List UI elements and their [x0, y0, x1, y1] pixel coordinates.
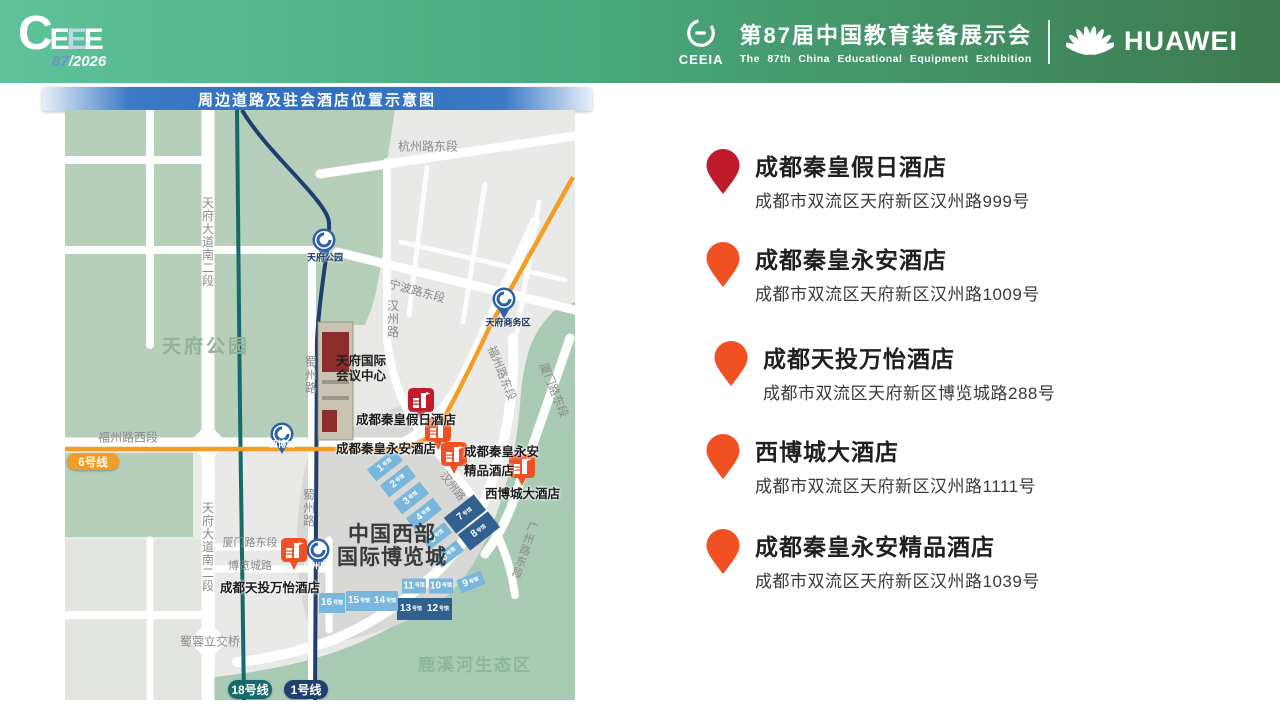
hall-11: 11号馆	[402, 579, 426, 594]
ceee-logo-c: C	[18, 7, 53, 60]
ceee-logo: CEEE 87/2026	[18, 10, 106, 69]
road-shuzhou-top: 蜀州路	[303, 356, 320, 395]
hall-16: 16号馆	[319, 593, 345, 613]
ceeia-text: CEEIA	[679, 52, 724, 67]
list-item: 成都天投万怡酒店 成都市双流区天府新区博览城路288号	[713, 340, 1055, 404]
hotel-list: 成都秦皇假日酒店 成都市双流区天府新区汉州路999号 成都秦皇永安酒店 成都市双…	[705, 140, 1265, 620]
hotel-address: 成都市双流区天府新区汉州路1039号	[755, 567, 1040, 592]
hall-12: 12号馆	[424, 598, 452, 620]
huawei-text: HUAWEI	[1124, 26, 1238, 57]
hotel-address: 成都市双流区天府新区汉州路1111号	[755, 472, 1036, 497]
hotel-name: 成都秦皇假日酒店	[755, 148, 1030, 182]
station-label-xibocheng: 西博城	[269, 438, 295, 450]
road-xiamen-east-bl: 厦门路东段	[223, 534, 278, 550]
huawei-flower-icon	[1066, 21, 1114, 63]
list-item: 成都秦皇假日酒店 成都市双流区天府新区汉州路999号	[705, 148, 1030, 212]
hall-14: 14号馆	[372, 591, 398, 611]
hotel-name: 成都秦皇永安酒店	[755, 241, 1040, 275]
station-label-tianfu-biz: 天府商务区	[485, 316, 530, 329]
map-pin-icon	[705, 528, 741, 576]
road-shuzhou-bottom: 蜀州路	[301, 489, 318, 528]
list-item: 西博城大酒店 成都市双流区天府新区汉州路1111号	[705, 433, 1036, 497]
hotel-name: 成都天投万怡酒店	[763, 340, 1055, 374]
conference-center-label: 天府国际 会议中心	[336, 354, 386, 384]
header-divider	[1048, 20, 1050, 64]
ceeia-logo: CEEIA	[679, 16, 724, 67]
huawei-logo: HUAWEI	[1066, 21, 1238, 63]
list-item: 成都秦皇永安精品酒店 成都市双流区天府新区汉州路1039号	[705, 528, 1040, 592]
hotel-address: 成都市双流区天府新区汉州路1009号	[755, 280, 1040, 305]
map-hotel-label-xibocheng: 西博城大酒店	[485, 483, 560, 502]
hotel-name: 西博城大酒店	[755, 433, 1036, 467]
map-hotel-label-wanyi: 成都天投万怡酒店	[220, 577, 320, 596]
park-label: 天府公园	[162, 332, 250, 359]
header-right: CEEIA 第87届中国教育装备展示会 The 87th China Educa…	[679, 0, 1238, 83]
header-bar: CEEE 87/2026 CEEIA 第87届中国教育装备展示会 The 87t…	[0, 0, 1280, 83]
station-label-guangzhoulu: 广州路	[303, 560, 329, 572]
hall-10: 10号馆	[429, 579, 453, 594]
map-hotel-label-yongan: 成都秦皇永安酒店	[336, 438, 436, 457]
road-bolancheng: 博览城路	[228, 557, 272, 573]
map-pin-icon	[705, 433, 741, 481]
map-pin-icon	[705, 148, 741, 196]
road-tianfu-ave-n2-top: 天府大道南二段	[200, 197, 217, 288]
venue-label: 中国西部 国际博览城	[337, 523, 447, 569]
badge-line-1: 1号线	[284, 680, 328, 699]
badge-line-18: 18号线	[228, 680, 272, 699]
hall-13: 13号馆	[397, 598, 425, 620]
road-shurong-interchange: 蜀蓉立交桥	[180, 633, 240, 650]
station-label-tianfu-park: 天府公园	[307, 251, 343, 264]
road-tianfu-ave-n2-bottom: 天府大道南二段	[200, 502, 217, 593]
map-pin-icon	[713, 340, 749, 388]
hall-15: 15号馆	[346, 591, 372, 611]
map-title-banner: 周边道路及驻会酒店位置示意图	[42, 87, 592, 111]
map-hotel-label-jiari: 成都秦皇假日酒店	[356, 409, 456, 428]
hotel-address: 成都市双流区天府新区博览城路288号	[763, 379, 1055, 404]
ceee-logo-e3: E	[84, 23, 104, 56]
list-item: 成都秦皇永安酒店 成都市双流区天府新区汉州路1009号	[705, 241, 1040, 305]
exhibition-title-cn: 第87届中国教育装备展示会	[740, 18, 1032, 50]
road-hangzhou-east: 杭州路东段	[398, 138, 458, 155]
ceeia-circle-icon	[684, 16, 718, 50]
road-fuzhou-west: 福州路西段	[98, 429, 158, 446]
map-title: 周边道路及驻会酒店位置示意图	[198, 89, 436, 110]
map-pin-icon	[705, 241, 741, 289]
road-hanzhou-top: 汉州路	[385, 300, 402, 339]
exhibition-title: 第87届中国教育装备展示会 The 87th China Educational…	[740, 18, 1032, 65]
badge-line-6: 6号线	[67, 453, 119, 470]
exhibition-title-en: The 87th China Educational Equipment Exh…	[740, 53, 1032, 65]
hotel-name: 成都秦皇永安精品酒店	[755, 528, 1040, 562]
location-map: 1号馆 2号馆 3号馆 4号馆 5号馆 6号馆 7号馆 8号馆 9号馆 10号馆…	[65, 110, 575, 700]
hotel-address: 成都市双流区天府新区汉州路999号	[755, 187, 1030, 212]
ceee-logo-year: 87/2026	[52, 54, 106, 69]
eco-area-label: 鹿溪河生态区	[418, 651, 532, 676]
map-hotel-label-jingpin: 成都秦皇永安 精品酒店	[464, 441, 539, 479]
